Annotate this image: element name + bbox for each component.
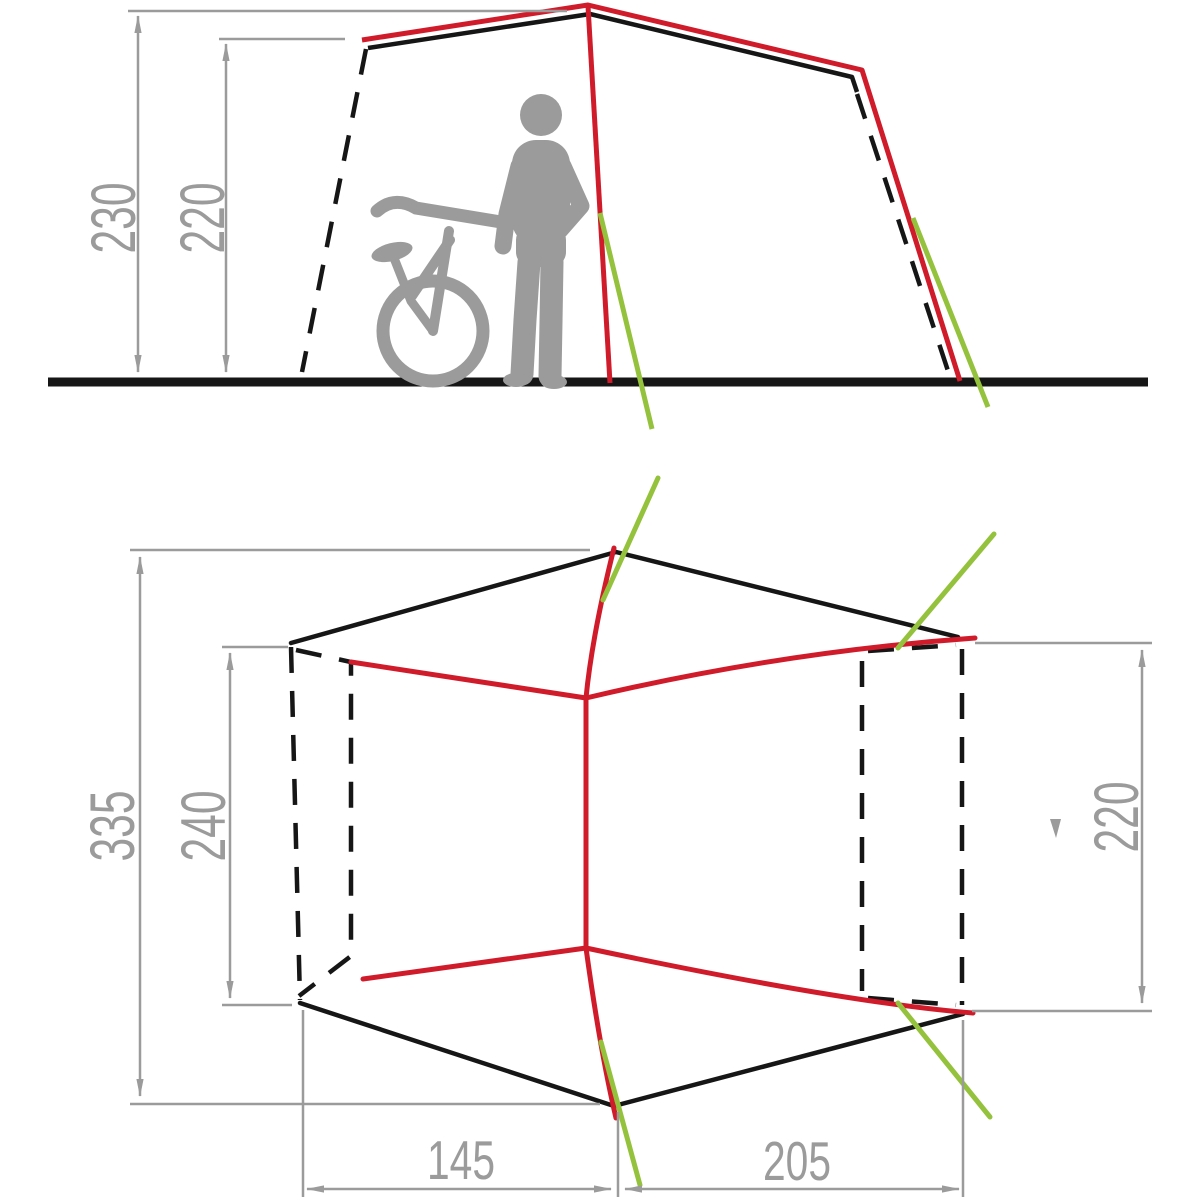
tent-dimensions-diagram: 230 220 bbox=[0, 0, 1200, 1200]
plan-edge-top-left bbox=[291, 552, 616, 643]
dim-label-door-width: 220 bbox=[1082, 782, 1152, 853]
plan-red-bottom-left bbox=[363, 948, 586, 979]
plan-view: 335 240 220 145 205 bbox=[78, 478, 1152, 1197]
diagram-canvas: 230 220 bbox=[0, 0, 1200, 1200]
plan-edge-top-right bbox=[616, 552, 958, 637]
front-pole-red bbox=[588, 6, 610, 383]
dim-label-rear-segment: 205 bbox=[763, 1130, 831, 1192]
plan-guy-top-right bbox=[898, 534, 994, 648]
plan-guy-bottom-center bbox=[601, 1042, 640, 1185]
plan-left-wall-dashed bbox=[291, 647, 300, 1000]
side-view: 230 220 bbox=[48, 5, 1148, 429]
plan-inner-cabin-dashed bbox=[296, 650, 351, 996]
plan-edge-bottom-left bbox=[300, 1003, 614, 1106]
dim-label-front-segment: 145 bbox=[427, 1129, 495, 1191]
plan-guy-top-center bbox=[603, 478, 658, 600]
dim-label-peak-height: 230 bbox=[79, 183, 149, 254]
plan-edge-bottom-right bbox=[614, 1014, 963, 1106]
dim-label-entry-height: 220 bbox=[168, 183, 238, 254]
tent-right-wall-dashed bbox=[857, 94, 949, 374]
tent-left-wall-dashed bbox=[302, 49, 366, 372]
plan-center-pole-red bbox=[586, 548, 616, 1118]
dim-label-inner-length: 240 bbox=[169, 791, 239, 862]
tent-fly-red-outline bbox=[362, 5, 960, 381]
person-silhouette bbox=[503, 94, 581, 389]
dim-label-total-length: 335 bbox=[78, 791, 148, 862]
bicycle-silhouette bbox=[369, 202, 507, 381]
small-arrow-marker-icon bbox=[1050, 819, 1061, 838]
plan-red-top-left bbox=[351, 662, 586, 698]
